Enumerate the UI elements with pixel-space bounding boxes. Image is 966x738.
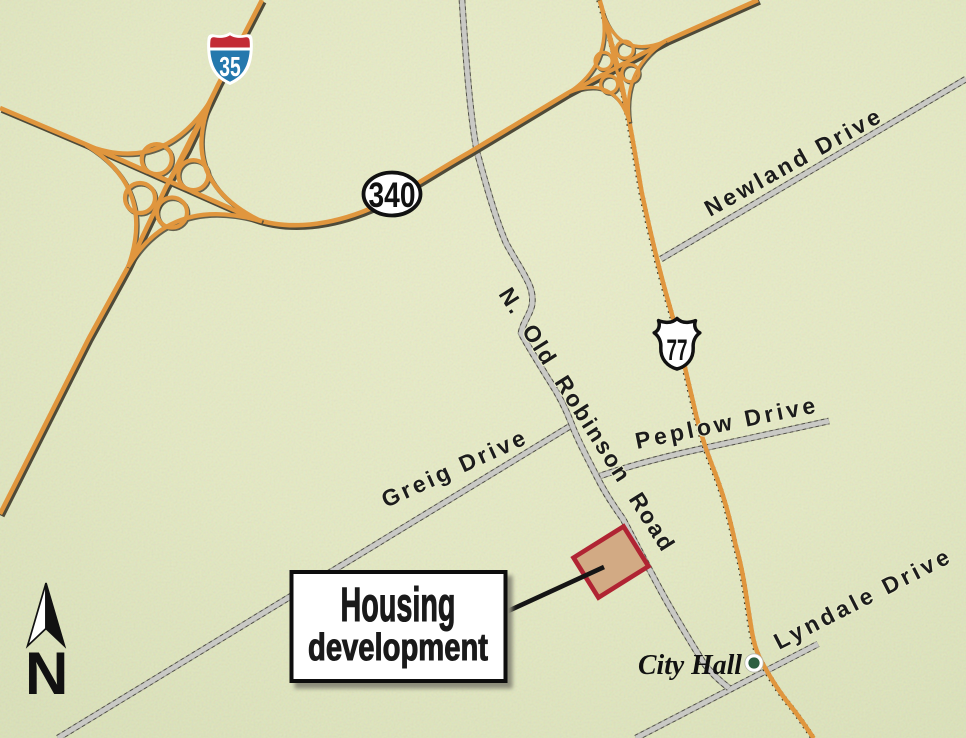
- svg-text:City Hall: City Hall: [638, 649, 743, 681]
- svg-text:Housing: Housing: [341, 579, 456, 632]
- svg-text:N: N: [25, 640, 68, 707]
- svg-text:development: development: [308, 627, 488, 669]
- svg-text:35: 35: [219, 52, 240, 83]
- svg-text:340: 340: [369, 176, 416, 215]
- svg-text:77: 77: [666, 334, 687, 368]
